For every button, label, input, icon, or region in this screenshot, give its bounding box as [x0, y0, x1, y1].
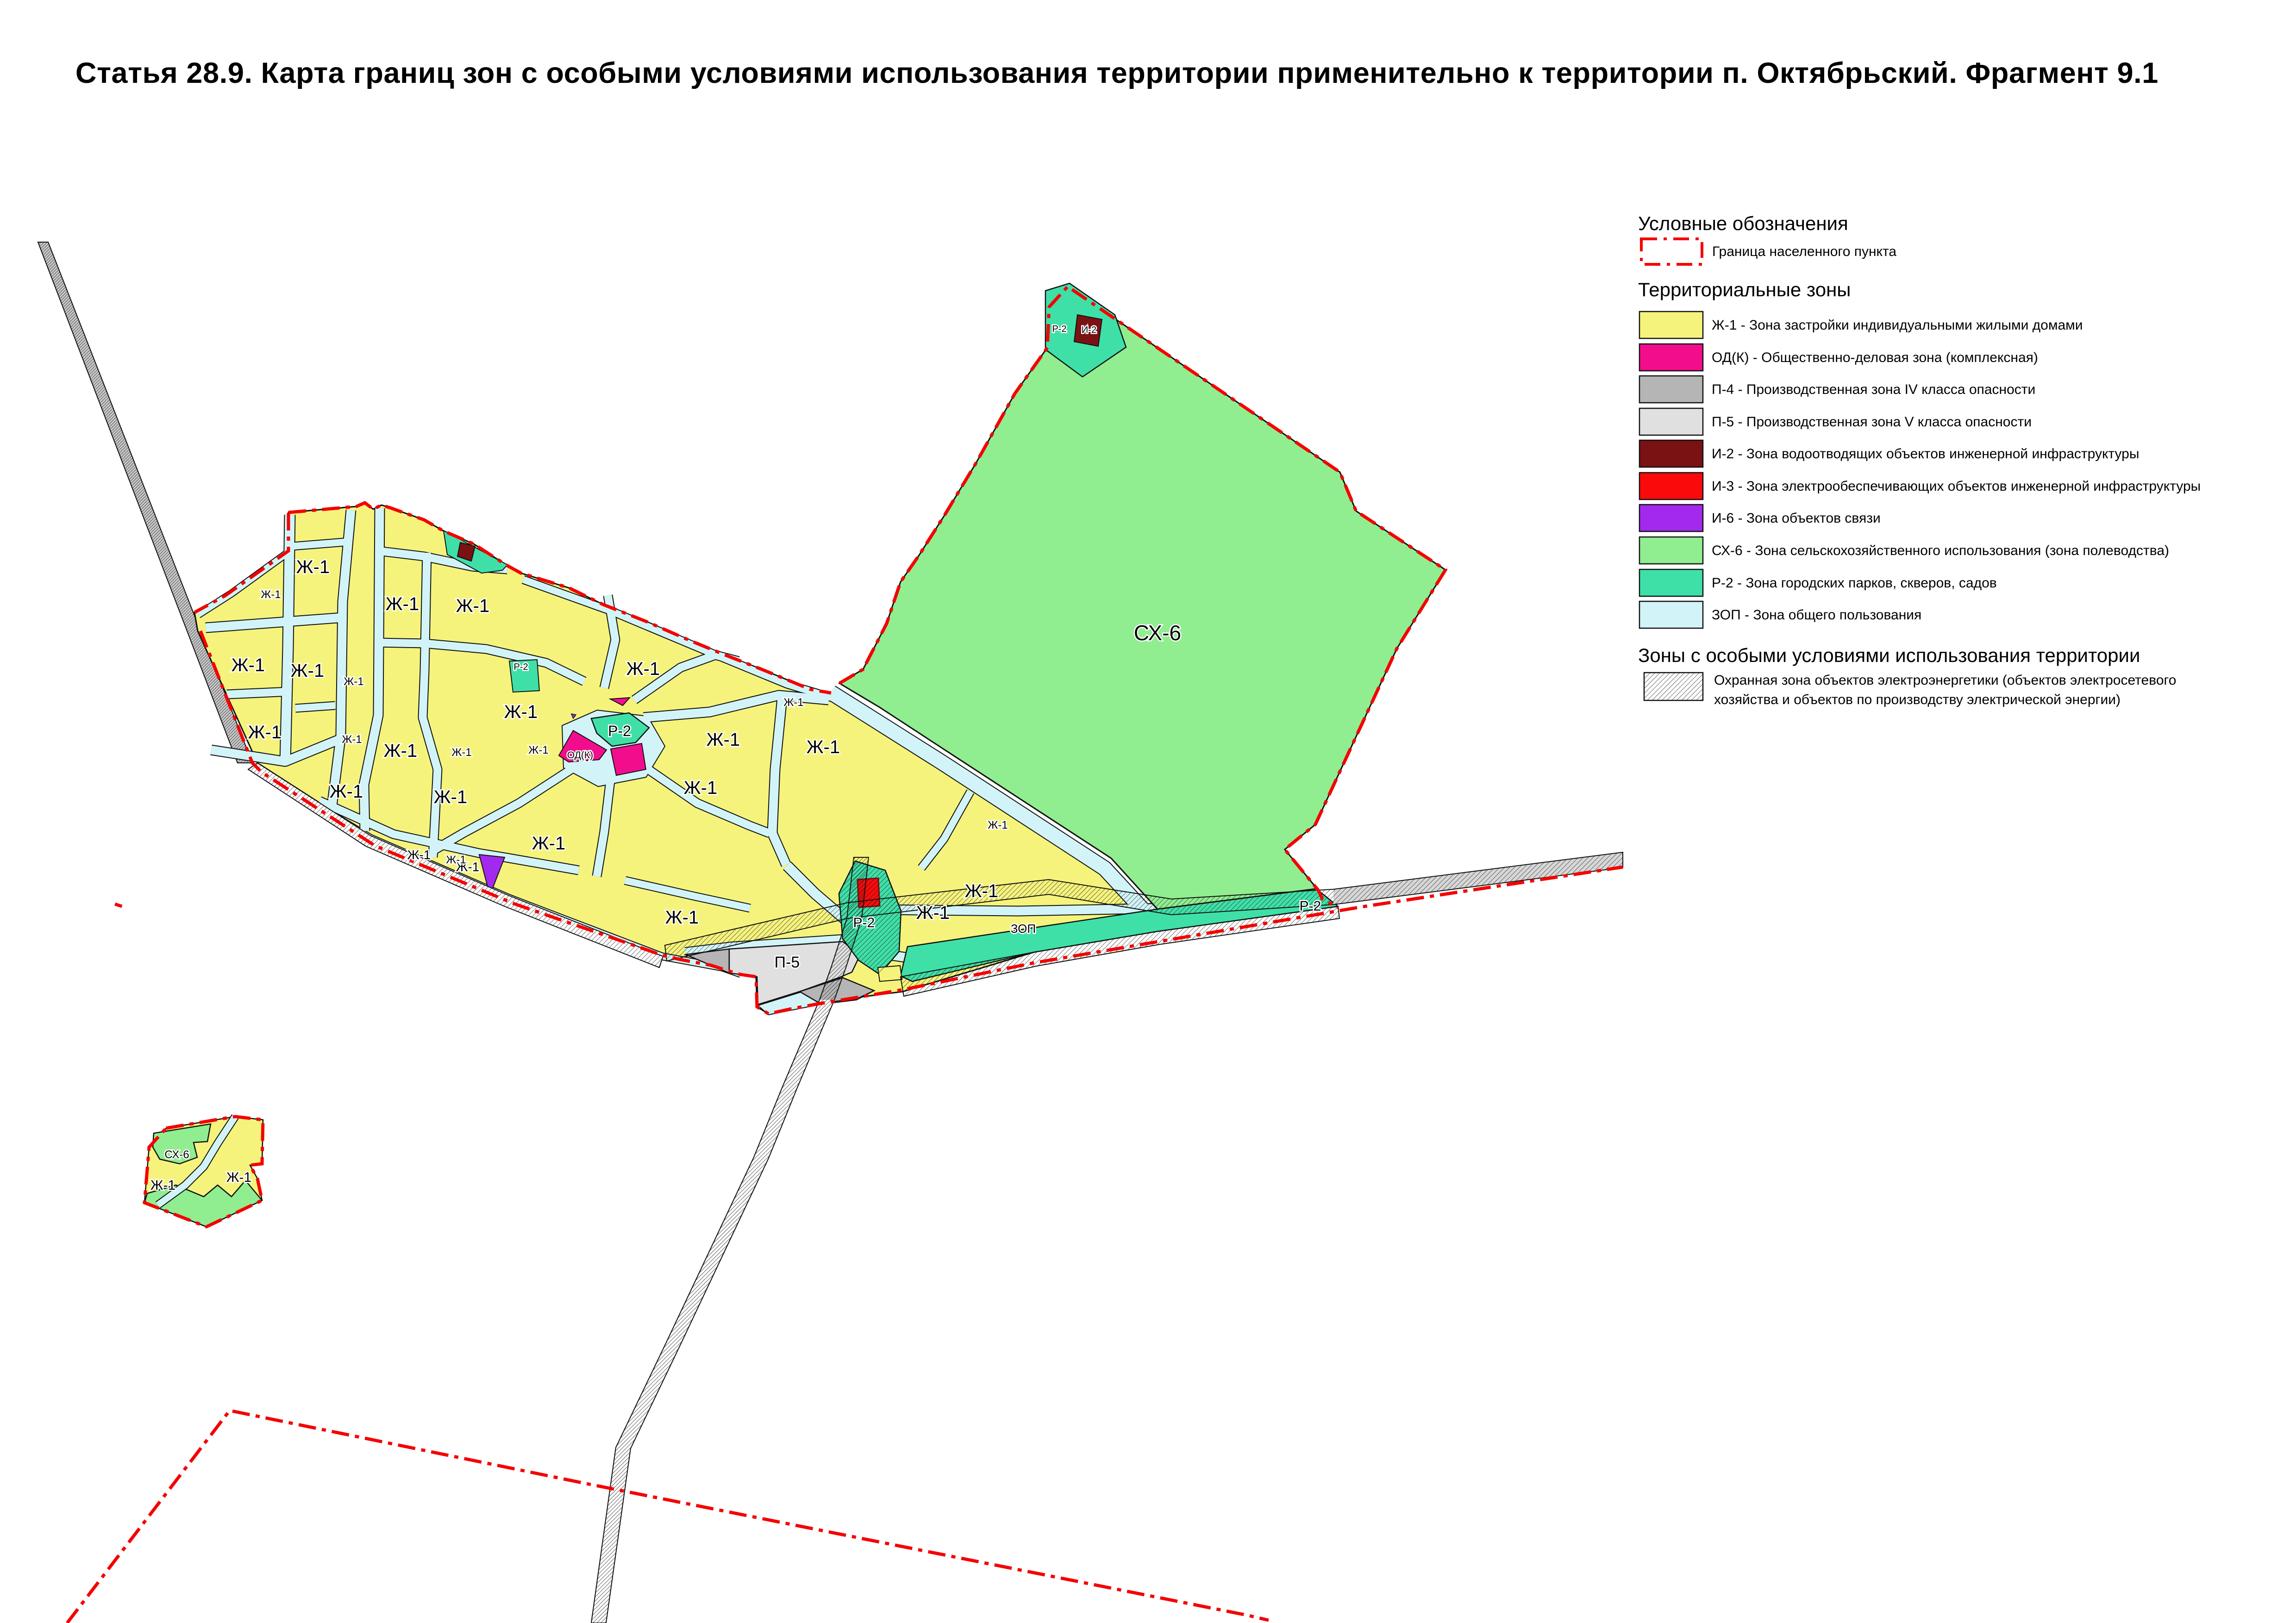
svg-text:Статья 28.9. Карта границ зон: Статья 28.9. Карта границ зон с особыми … — [75, 57, 2158, 89]
svg-text:ОД(К): ОД(К) — [567, 750, 593, 761]
svg-text:И-2: И-2 — [1082, 325, 1096, 335]
svg-text:Ж-1: Ж-1 — [434, 787, 468, 807]
svg-text:Ж-1: Ж-1 — [344, 675, 364, 688]
svg-text:Условные обозначения: Условные обозначения — [1638, 212, 1848, 234]
svg-text:П-4 - Производственная зона IV: П-4 - Производственная зона IV класса оп… — [1712, 382, 2035, 397]
svg-text:Р-2: Р-2 — [1052, 324, 1066, 334]
svg-text:Ж-1: Ж-1 — [707, 730, 740, 750]
svg-text:Ж-1: Ж-1 — [451, 746, 472, 759]
svg-text:П-5 - Производственная зона V: П-5 - Производственная зона V класса опа… — [1712, 414, 2032, 430]
svg-text:Р-2: Р-2 — [513, 662, 528, 672]
svg-text:Ж-1: Ж-1 — [626, 659, 660, 679]
svg-text:Ж-1: Ж-1 — [226, 1170, 251, 1185]
svg-text:Ж-1: Ж-1 — [965, 881, 999, 901]
svg-text:Р-2: Р-2 — [608, 723, 631, 739]
svg-text:Р-2 - Зона городских парков, с: Р-2 - Зона городских парков, скверов, са… — [1712, 575, 1997, 591]
svg-text:Ж-1: Ж-1 — [248, 722, 282, 743]
svg-text:Ж-1: Ж-1 — [456, 596, 490, 616]
svg-text:Ж-1: Ж-1 — [807, 737, 840, 757]
svg-text:Ж-1: Ж-1 — [916, 903, 950, 923]
svg-text:Ж-1: Ж-1 — [231, 655, 265, 675]
svg-text:Территориальные зоны: Территориальные зоны — [1638, 279, 1851, 300]
svg-text:Ж-1 - Зона застройки индивидуа: Ж-1 - Зона застройки индивидуальными жил… — [1712, 318, 2083, 333]
svg-text:Ж-1: Ж-1 — [988, 819, 1008, 831]
svg-text:Р-2: Р-2 — [1300, 899, 1321, 914]
svg-text:Ж-1: Ж-1 — [386, 594, 419, 614]
svg-text:Ж-1: Ж-1 — [342, 733, 362, 746]
svg-text:Ж-1: Ж-1 — [291, 661, 325, 681]
svg-text:Ж-1: Ж-1 — [532, 833, 566, 854]
svg-text:ЗОП - Зона общего пользования: ЗОП - Зона общего пользования — [1712, 607, 1921, 623]
svg-text:Ж-1: Ж-1 — [384, 741, 418, 761]
svg-text:И-6 - Зона объектов связи: И-6 - Зона объектов связи — [1712, 511, 1881, 526]
svg-text:Ж-1: Ж-1 — [783, 696, 804, 709]
svg-text:хозяйства и объектов по произв: хозяйства и объектов по производству эле… — [1714, 692, 2121, 707]
svg-text:ЗОП: ЗОП — [1011, 922, 1036, 936]
svg-text:СХ-6: СХ-6 — [1134, 621, 1181, 645]
svg-text:Ж-1: Ж-1 — [446, 854, 466, 866]
svg-text:Ж-1: Ж-1 — [684, 778, 718, 798]
svg-text:Ж-1: Ж-1 — [665, 907, 699, 928]
svg-text:И-3 - Зона электрообеспечивающ: И-3 - Зона электрообеспечивающих объекто… — [1712, 479, 2201, 494]
svg-text:Ж-1: Ж-1 — [528, 744, 549, 756]
svg-text:СХ-6: СХ-6 — [164, 1149, 189, 1161]
svg-text:Ж-1: Ж-1 — [150, 1178, 175, 1193]
svg-text:Зоны с особыми условиями испол: Зоны с особыми условиями использования т… — [1638, 644, 2140, 666]
svg-text:Охранная зона объектов электро: Охранная зона объектов электроэнергетики… — [1714, 673, 2176, 688]
svg-text:Ж-1: Ж-1 — [407, 848, 431, 862]
svg-text:СХ-6 - Зона сельскохозяйственн: СХ-6 - Зона сельскохозяйственного исполь… — [1712, 543, 2169, 558]
svg-text:Ж-1: Ж-1 — [330, 781, 363, 802]
svg-text:Ж-1: Ж-1 — [504, 702, 538, 722]
svg-text:Граница населенного пункта: Граница населенного пункта — [1712, 244, 1896, 259]
svg-text:Р-2: Р-2 — [853, 915, 875, 930]
svg-text:ОД(К) - Общественно-деловая зо: ОД(К) - Общественно-деловая зона (компле… — [1712, 350, 2038, 365]
svg-text:Ж-1: Ж-1 — [296, 557, 330, 577]
svg-text:Ж-1: Ж-1 — [261, 588, 281, 601]
svg-text:П-5: П-5 — [775, 954, 800, 971]
svg-text:И-2 - Зона водоотводящих объек: И-2 - Зона водоотводящих объектов инжене… — [1712, 446, 2139, 462]
